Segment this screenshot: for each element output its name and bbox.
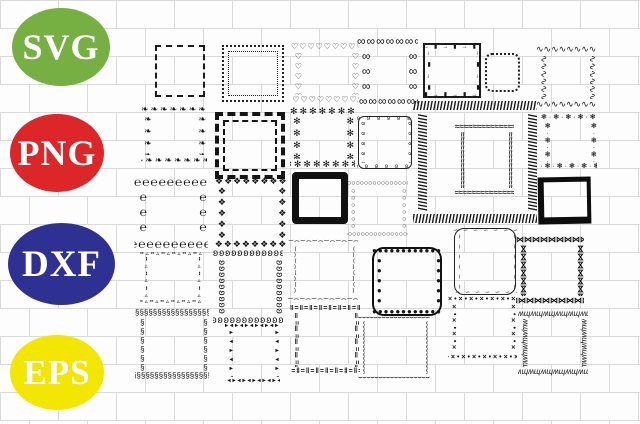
frame-edge-top: ⌣⌢⌣⌢⌣⌢⌣⌢⌣⌢⌣⌢⌣⌢⌣⌢⌣⌢⌣⌢⌣⌢⌣⌢⌣⌢⌣⌢⌣⌢⌣⌢⌣⌢⌣⌢⌣⌢⌣⌢… — [288, 236, 358, 248]
frame-celtic-braid: ⋈⋈⋈⋈⋈⋈⋈⋈⋈⋈⋈⋈⋈⋈⋈⋈⋈⋈⋈⋈⋈⋈⋈⋈⋈⋈⋈⋈⋈⋈⋈⋈⋈⋈⋈⋈⋈⋈⋈⋈… — [518, 238, 582, 303]
grout-line-v — [609, 309, 610, 336]
grout-line-v — [348, 393, 349, 420]
grout-line-v — [0, 281, 1, 308]
frame-edge-right: ‖=‖=‖=‖=‖=‖=‖=‖=‖=‖=‖=‖=‖=‖=‖=‖=‖=‖=‖=‖=… — [350, 313, 359, 366]
grout-line-v — [638, 169, 639, 196]
frame-small-dotted — [485, 53, 520, 92]
frame-stitch-dash — [155, 45, 205, 97]
grout-line-v — [435, 365, 436, 392]
frame-edge-left: ʚʚʚʚʚʚʚʚʚʚʚʚʚʚʚʚʚʚʚʚʚʚʚʚʚʚʚʚʚʚʚʚʚʚʚʚʚʚʚʚ… — [213, 260, 227, 314]
frame-edge-left: ⌣⌣⌣⌣⌣⌣⌣⌣⌣⌣⌣⌣⌣⌣⌣⌣⌣⌣⌣⌣⌣⌣⌣⌣⌣⌣⌣⌣⌣⌣⌣⌣⌣⌣⌣⌣⌣⌣⌣⌣… — [359, 321, 367, 373]
frame-edge-left: ▸◂▸◂▸◂▸◂▸◂▸◂▸◂▸◂▸◂▸◂▸◂▸◂▸◂▸◂▸◂▸◂▸◂▸◂▸◂▸◂… — [226, 329, 234, 376]
format-badge-png: PNG — [10, 114, 104, 192]
frame-edge-bottom: ⌣⌣⌣⌣⌣⌣⌣⌣⌣⌣⌣⌣⌣⌣⌣⌣⌣⌣⌣⌣⌣⌣⌣⌣⌣⌣⌣⌣⌣⌣⌣⌣⌣⌣⌣⌣⌣⌣⌣⌣… — [358, 372, 430, 380]
frame-edge-right: ♡♡♡♡♡♡♡♡♡♡♡♡♡♡♡♡♡♡♡♡♡♡♡♡♡♡♡♡♡♡♡♡♡♡♡♡♡♡♡♡… — [348, 52, 359, 95]
grout-line-v — [522, 57, 523, 84]
frame-edge-right: ╍▵╍▵╍▵╍▵╍▵╍▵╍▵╍▵╍▵╍▵╍▵╍▵╍▵╍▵╍▵╍▵╍▵╍▵╍▵╍▵… — [193, 257, 201, 297]
frame-circuit-arrow: →▮→▮→▮→▮→▮→▮→▮→▮→▮→▮→▮→▮→▮→▮→▮→▮→▮→▮→▮→▮… — [423, 43, 481, 98]
grout-line-v — [406, 393, 407, 420]
grout-line-v — [116, 225, 117, 252]
frame-edge-right: ✻✻✻✻✻✻✻✻✻✻✻✻✻✻✻✻✻✻✻✻✻✻✻✻✻✻✻✻✻✻✻✻✻✻✻✻✻✻✻✻… — [343, 117, 355, 159]
grout-line-h — [0, 420, 640, 421]
format-badge-label: DXF — [22, 243, 101, 286]
grout-line-v — [29, 309, 30, 336]
grout-line-v — [638, 57, 639, 84]
frame-edge-top: ‖=‖=‖=‖=‖=‖=‖=‖=‖=‖=‖=‖=‖=‖=‖=‖=‖=‖=‖=‖=… — [290, 305, 360, 314]
frame-x-dot: ×•×•×•×•×•×•×•×•×•×•×•×•×•×•×•×•×•×•×•×•… — [450, 298, 515, 359]
frame-dash-triangle: ╍▵╍▵╍▵╍▵╍▵╍▵╍▵╍▵╍▵╍▵╍▵╍▵╍▵╍▵╍▵╍▵╍▵╍▵╍▵╍▵… — [142, 252, 200, 303]
grout-line-v — [638, 393, 639, 420]
frame-edge-bottom: ⋈⋈⋈⋈⋈⋈⋈⋈⋈⋈⋈⋈⋈⋈⋈⋈⋈⋈⋈⋈⋈⋈⋈⋈⋈⋈⋈⋈⋈⋈⋈⋈⋈⋈⋈⋈⋈⋈⋈⋈… — [516, 294, 584, 305]
frame-asterisk: ✻✻✻✻✻✻✻✻✻✻✻✻✻✻✻✻✻✻✻✻✻✻✻✻✻✻✻✻✻✻✻✻✻✻✻✻✻✻✻✻… — [292, 109, 353, 167]
frame-edge-right: →▮→▮→▮→▮→▮→▮→▮→▮→▮→▮→▮→▮→▮→▮→▮→▮→▮→▮→▮→▮… — [472, 50, 480, 90]
frame-lace-scroll: §§§§§§§§§§§§§§§§§§§§§§§§§§§§§§§§§§§§§§§§… — [137, 311, 207, 378]
frame-bold-double-dash — [215, 112, 285, 179]
grout-line-v — [0, 225, 1, 252]
grout-line-v — [348, 1, 349, 28]
grout-line-v — [290, 1, 291, 28]
frame-edge-top: ▸◂▸◂▸◂▸◂▸◂▸◂▸◂▸◂▸◂▸◂▸◂▸◂▸◂▸◂▸◂▸◂▸◂▸◂▸◂▸◂… — [225, 323, 280, 331]
grout-line-v — [464, 1, 465, 28]
frame-edge-bottom: ʚʚʚʚʚʚʚʚʚʚʚʚʚʚʚʚʚʚʚʚʚʚʚʚʚʚʚʚʚʚʚʚʚʚʚʚʚʚʚʚ… — [357, 161, 413, 169]
frame-inner-border — [301, 181, 339, 215]
frame-edge-top: ∽∽∽∽∽∽∽∽∽∽∽∽∽∽∽∽∽∽∽∽∽∽∽∽∽∽∽∽∽∽∽∽∽∽∽∽∽∽∽∽… — [453, 228, 517, 236]
frame-edge-right: ʚʚʚʚʚʚʚʚʚʚʚʚʚʚʚʚʚʚʚʚʚʚʚʚʚʚʚʚʚʚʚʚʚʚʚʚʚʚʚʚ… — [270, 260, 284, 314]
frame-edge-top: ℮℮℮℮℮℮℮℮℮℮℮℮℮℮℮℮℮℮℮℮℮℮℮℮℮℮℮℮℮℮℮℮℮℮℮℮℮℮℮℮… — [134, 176, 208, 192]
frame-edge-top: ʚʚʚʚʚʚʚʚʚʚʚʚʚʚʚʚʚʚʚʚʚʚʚʚʚʚʚʚʚʚʚʚʚʚʚʚʚʚʚʚ… — [357, 116, 413, 124]
grout-line-v — [87, 85, 88, 112]
grout-line-v — [116, 1, 117, 28]
frame-edge-right: ʍɰʍɰʍɰʍɰʍɰʍɰʍɰʍɰʍɰʍɰʍɰʍɰʍɰʍɰʍɰʍɰʍɰʍɰʍɰʍɰ… — [577, 319, 588, 367]
grout-line-v — [290, 337, 291, 364]
frame-scribble: ≈≈≈≈≈≈≈≈≈≈≈≈≈≈≈≈≈≈≈≈≈≈≈≈≈≈≈≈≈≈≈≈≈≈≈≈≈≈≈≈… — [457, 125, 512, 195]
frame-edge-left: ⌣⌢⌣⌢⌣⌢⌣⌢⌣⌢⌣⌢⌣⌢⌣⌢⌣⌢⌣⌢⌣⌢⌣⌢⌣⌢⌣⌢⌣⌢⌣⌢⌣⌢⌣⌢⌣⌢⌣⌢… — [288, 246, 300, 293]
frame-edge-bottom: ×•×•×•×•×•×•×•×•×•×•×•×•×•×•×•×•×•×•×•×•… — [448, 351, 517, 360]
format-badge-svg: SVG — [12, 8, 110, 86]
grout-line-v — [0, 169, 1, 196]
frame-edge-top: ʍɰʍɰʍɰʍɰʍɰʍɰʍɰʍɰʍɰʍɰʍɰʍɰʍɰʍɰʍɰʍɰʍɰʍɰʍɰʍɰ… — [518, 310, 588, 321]
frame-ring-chain: ○○○○○○○○○○○○○○○○○○○○○○○○○○○○○○○○○○○○○○○○… — [349, 182, 406, 236]
grout-line-v — [522, 393, 523, 420]
frame-edge-top: ♡♡♡♡♡♡♡♡♡♡♡♡♡♡♡♡♡♡♡♡♡♡♡♡♡♡♡♡♡♡♡♡♡♡♡♡♡♡♡♡… — [291, 43, 359, 54]
frame-edge-top: ≈≈≈≈≈≈≈≈≈≈≈≈≈≈≈≈≈≈≈≈≈≈≈≈≈≈≈≈≈≈≈≈≈≈≈≈≈≈≈≈… — [455, 123, 514, 134]
frame-edge-bottom: ❧❧❧❧❧❧❧❧❧❧❧❧❧❧❧❧❧❧❧❧❧❧❧❧❧❧❧❧❧❧❧❧❧❧❧❧❧❧❧❧… — [141, 153, 207, 165]
frame-black-scallop — [292, 172, 348, 224]
frame-flower-dot: ❃·❃·❃·❃·❃·❃·❃·❃·❃·❃·❃·❃·❃·❃·❃·❃·❃·❃·❃·❃·… — [543, 116, 595, 168]
grout-line-v — [0, 57, 1, 84]
frame-edge-right: ×•×•×•×•×•×•×•×•×•×•×•×•×•×•×•×•×•×•×•×•… — [507, 304, 516, 352]
frame-edge-top: ❃·❃·❃·❃·❃·❃·❃·❃·❃·❃·❃·❃·❃·❃·❃·❃·❃·❃·❃·❃·… — [541, 114, 597, 123]
grout-line-v — [638, 281, 639, 308]
frame-edge-bottom: ‖=‖=‖=‖=‖=‖=‖=‖=‖=‖=‖=‖=‖=‖=‖=‖=‖=‖=‖=‖=… — [290, 365, 360, 374]
format-badge-label: SVG — [22, 26, 99, 68]
frame-barbell-equals: ‖=‖=‖=‖=‖=‖=‖=‖=‖=‖=‖=‖=‖=‖=‖=‖=‖=‖=‖=‖=… — [292, 307, 358, 373]
grout-line-v — [203, 253, 204, 280]
frame-edge-top: ⌣⌣⌣⌣⌣⌣⌣⌣⌣⌣⌣⌣⌣⌣⌣⌣⌣⌣⌣⌣⌣⌣⌣⌣⌣⌣⌣⌣⌣⌣⌣⌣⌣⌣⌣⌣⌣⌣⌣⌣… — [358, 315, 430, 323]
format-badge-eps: EPS — [10, 335, 104, 410]
grout-line-v — [116, 337, 117, 364]
frame-edge-right: §§§§§§§§§§§§§§§§§§§§§§§§§§§§§§§§§§§§§§§§… — [198, 318, 209, 371]
frame-curly-loop: ∿∿∿∿∿∿∿∿∿∿∿∿∿∿∿∿∿∿∿∿∿∿∿∿∿∿∿∿∿∿∿∿∿∿∿∿∿∿∿∿… — [538, 47, 594, 107]
grout-line-v — [609, 253, 610, 280]
frame-hearts: ♡♡♡♡♡♡♡♡♡♡♡♡♡♡♡♡♡♡♡♡♡♡♡♡♡♡♡♡♡♡♡♡♡♡♡♡♡♡♡♡… — [293, 45, 357, 102]
frame-edge-left: ○○○○○○○○○○○○○○○○○○○○○○○○○○○○○○○○○○○○○○○○… — [347, 188, 356, 229]
grout-line-v — [493, 29, 494, 56]
frame-beaded-bold: ●●●●●●●●●●●●●●●●●●●●●●●●●●●●●●●●●●●●●●●●… — [372, 247, 442, 316]
grout-line-v — [0, 1, 1, 28]
frame-edge-top: ⋈⋈⋈⋈⋈⋈⋈⋈⋈⋈⋈⋈⋈⋈⋈⋈⋈⋈⋈⋈⋈⋈⋈⋈⋈⋈⋈⋈⋈⋈⋈⋈⋈⋈⋈⋈⋈⋈⋈⋈… — [516, 236, 584, 247]
grout-line-v — [464, 393, 465, 420]
frame-edge-top: ○○○○○○○○○○○○○○○○○○○○○○○○○○○○○○○○○○○○○○○○… — [347, 180, 408, 189]
grout-line-v — [638, 225, 639, 252]
frame-damask: ❖❖❖❖❖❖❖❖❖❖❖❖❖❖❖❖❖❖❖❖❖❖❖❖❖❖❖❖❖❖❖❖❖❖❖❖❖❖❖❖… — [217, 179, 285, 247]
frame-elegant-bracket: ∽∽∽∽∽∽∽∽∽∽∽∽∽∽∽∽∽∽∽∽∽∽∽∽∽∽∽∽∽∽∽∽∽∽∽∽∽∽∽∽… — [454, 228, 516, 295]
grout-line-v — [0, 393, 1, 420]
frame-edge-right: ∽∽∽∽∽∽∽∽∽∽∽∽∽∽∽∽∽∽∽∽∽∽∽∽∽∽∽∽∽∽∽∽∽∽∽∽∽∽∽∽… — [508, 234, 516, 288]
frame-edge-left: ʍɰʍɰʍɰʍɰʍɰʍɰʍɰʍɰʍɰʍɰʍɰʍɰʍɰʍɰʍɰʍɰʍɰʍɰʍɰʍɰ… — [518, 319, 529, 367]
frame-edge-right: ❧❧❧❧❧❧❧❧❧❧❧❧❧❧❧❧❧❧❧❧❧❧❧❧❧❧❧❧❧❧❧❧❧❧❧❧❧❧❧❧… — [195, 115, 207, 155]
grout-line-v — [609, 365, 610, 392]
frame-edge-top: ∿∿∿∿∿∿∿∿∿∿∿∿∿∿∿∿∿∿∿∿∿∿∿∿∿∿∿∿∿∿∿∿∿∿∿∿∿∿∿∿… — [536, 45, 596, 57]
frame-edge-top: §§§§§§§§§§§§§§§§§§§§§§§§§§§§§§§§§§§§§§§§… — [135, 309, 209, 320]
frame-edge-bottom: ●●●●●●●●●●●●●●●●●●●●●●●●●●●●●●●●●●●●●●●●… — [372, 305, 442, 316]
grout-line-v — [609, 197, 610, 224]
frame-edge-left: ≈≈≈≈≈≈≈≈≈≈≈≈≈≈≈≈≈≈≈≈≈≈≈≈≈≈≈≈≈≈≈≈≈≈≈≈≈≈≈≈… — [455, 132, 466, 188]
frame-edge-top: ●●●●●●●●●●●●●●●●●●●●●●●●●●●●●●●●●●●●●●●●… — [372, 247, 442, 258]
frame-edge-bottom: ╍▵╍▵╍▵╍▵╍▵╍▵╍▵╍▵╍▵╍▵╍▵╍▵╍▵╍▵╍▵╍▵╍▵╍▵╍▵╍▵… — [140, 296, 202, 304]
format-badge-label: PNG — [18, 132, 97, 174]
grout-line-v — [87, 309, 88, 336]
frame-edge-left: ∽∽∽∽∽∽∽∽∽∽∽∽∽∽∽∽∽∽∽∽∽∽∽∽∽∽∽∽∽∽∽∽∽∽∽∽∽∽∽∽… — [454, 234, 462, 288]
frame-inner-border — [223, 120, 277, 171]
frame-edge-left: ❧❧❧❧❧❧❧❧❧❧❧❧❧❧❧❧❧❧❧❧❧❧❧❧❧❧❧❧❧❧❧❧❧❧❧❧❧❧❧❧… — [141, 115, 153, 155]
format-badge-dxf: DXF — [8, 223, 115, 305]
frame-edge-left: ×•×•×•×•×•×•×•×•×•×•×•×•×•×•×•×•×•×•×•×•… — [448, 304, 457, 352]
grout-line-v — [174, 393, 175, 420]
grout-line-v — [87, 197, 88, 224]
frame-edge-bottom: ////////////////////////////////////////… — [413, 209, 537, 225]
frame-edge-left: ❃·❃·❃·❃·❃·❃·❃·❃·❃·❃·❃·❃·❃·❃·❃·❃·❃·❃·❃·❃·… — [541, 122, 550, 161]
frame-edge-bottom: ▸◂▸◂▸◂▸◂▸◂▸◂▸◂▸◂▸◂▸◂▸◂▸◂▸◂▸◂▸◂▸◂▸◂▸◂▸◂▸◂… — [225, 375, 280, 383]
frame-brush-stroke — [538, 177, 592, 225]
frame-edge-bottom: §§§§§§§§§§§§§§§§§§§§§§§§§§§§§§§§§§§§§§§§… — [135, 369, 209, 380]
frame-edge-left: ╍▵╍▵╍▵╍▵╍▵╍▵╍▵╍▵╍▵╍▵╍▵╍▵╍▵╍▵╍▵╍▵╍▵╍▵╍▵╍▵… — [141, 257, 149, 297]
frame-scribble-script: ʍɰʍɰʍɰʍɰʍɰʍɰʍɰʍɰʍɰʍɰʍɰʍɰʍɰʍɰʍɰʍɰʍɰʍɰʍɰʍɰ… — [520, 312, 586, 374]
frame-edge-top: ❧❧❧❧❧❧❧❧❧❧❧❧❧❧❧❧❧❧❧❧❧❧❧❧❧❧❧❧❧❧❧❧❧❧❧❧❧❧❧❧… — [141, 105, 207, 117]
grout-line-v — [290, 393, 291, 420]
product-image: SVGPNGDXFEPS ♡♡♡♡♡♡♡♡♡♡♡♡♡♡♡♡♡♡♡♡♡♡♡♡♡♡♡… — [0, 0, 640, 424]
frame-edge-left: ℮℮℮℮℮℮℮℮℮℮℮℮℮℮℮℮℮℮℮℮℮℮℮℮℮℮℮℮℮℮℮℮℮℮℮℮℮℮℮℮… — [133, 190, 149, 236]
frame-edge-top: ∞∞∞∞∞∞∞∞∞∞∞∞∞∞∞∞∞∞∞∞∞∞∞∞∞∞∞∞∞∞∞∞∞∞∞∞∞∞∞∞… — [357, 35, 418, 51]
frame-inner-border — [228, 51, 278, 96]
grout-line-v — [580, 393, 581, 420]
grout-line-v — [638, 337, 639, 364]
frame-edge-left: ♡♡♡♡♡♡♡♡♡♡♡♡♡♡♡♡♡♡♡♡♡♡♡♡♡♡♡♡♡♡♡♡♡♡♡♡♡♡♡♡… — [291, 52, 302, 95]
frame-arrow-tick: ▸◂▸◂▸◂▸◂▸◂▸◂▸◂▸◂▸◂▸◂▸◂▸◂▸◂▸◂▸◂▸◂▸◂▸◂▸◂▸◂… — [227, 324, 278, 382]
frame-edge-left: →▮→▮→▮→▮→▮→▮→▮→▮→▮→▮→▮→▮→▮→▮→▮→▮→▮→▮→▮→▮… — [424, 50, 432, 90]
frame-edge-left: ∿∿∿∿∿∿∿∿∿∿∿∿∿∿∿∿∿∿∿∿∿∿∿∿∿∿∿∿∿∿∿∿∿∿∿∿∿∿∿∿… — [536, 55, 548, 99]
frame-big-loops: ℮℮℮℮℮℮℮℮℮℮℮℮℮℮℮℮℮℮℮℮℮℮℮℮℮℮℮℮℮℮℮℮℮℮℮℮℮℮℮℮… — [136, 179, 206, 247]
frame-edge-bottom: ○○○○○○○○○○○○○○○○○○○○○○○○○○○○○○○○○○○○○○○○… — [347, 228, 408, 237]
grout-line-v — [290, 57, 291, 84]
grout-line-v — [493, 365, 494, 392]
frame-edge-right: ⌣⌣⌣⌣⌣⌣⌣⌣⌣⌣⌣⌣⌣⌣⌣⌣⌣⌣⌣⌣⌣⌣⌣⌣⌣⌣⌣⌣⌣⌣⌣⌣⌣⌣⌣⌣⌣⌣⌣⌣… — [421, 321, 429, 373]
frame-leaf-vine: ❧❧❧❧❧❧❧❧❧❧❧❧❧❧❧❧❧❧❧❧❧❧❧❧❧❧❧❧❧❧❧❧❧❧❧❧❧❧❧❧… — [143, 107, 205, 163]
frame-edge-top: ❖❖❖❖❖❖❖❖❖❖❖❖❖❖❖❖❖❖❖❖❖❖❖❖❖❖❖❖❖❖❖❖❖❖❖❖❖❖❖❖… — [215, 177, 287, 189]
frame-edge-top: →▮→▮→▮→▮→▮→▮→▮→▮→▮→▮→▮→▮→▮→▮→▮→▮→▮→▮→▮→▮… — [423, 44, 481, 52]
frame-double-dotted — [222, 45, 284, 102]
frame-edge-top: ////////////////////////////////////////… — [413, 100, 537, 116]
grout-line-v — [609, 29, 610, 56]
grout-line-v — [29, 197, 30, 224]
grout-line-v — [145, 29, 146, 56]
frame-edge-right: ❃·❃·❃·❃·❃·❃·❃·❃·❃·❃·❃·❃·❃·❃·❃·❃·❃·❃·❃·❃·… — [587, 122, 596, 161]
grout-line-v — [580, 1, 581, 28]
frame-spiral-curl: ʚʚʚʚʚʚʚʚʚʚʚʚʚʚʚʚʚʚʚʚʚʚʚʚʚʚʚʚʚʚʚʚʚʚʚʚʚʚʚʚ… — [215, 251, 281, 323]
grout-line-v — [116, 281, 117, 308]
frame-swirl-bud: ʚʚʚʚʚʚʚʚʚʚʚʚʚʚʚʚʚʚʚʚʚʚʚʚʚʚʚʚʚʚʚʚʚʚʚʚʚʚʚʚ… — [358, 116, 412, 169]
frame-edge-top: ʚʚʚʚʚʚʚʚʚʚʚʚʚʚʚʚʚʚʚʚʚʚʚʚʚʚʚʚʚʚʚʚʚʚʚʚʚʚʚʚ… — [213, 249, 283, 263]
frame-edge-bottom: ♡♡♡♡♡♡♡♡♡♡♡♡♡♡♡♡♡♡♡♡♡♡♡♡♡♡♡♡♡♡♡♡♡♡♡♡♡♡♡♡… — [291, 93, 359, 104]
frame-edge-left: ✻✻✻✻✻✻✻✻✻✻✻✻✻✻✻✻✻✻✻✻✻✻✻✻✻✻✻✻✻✻✻✻✻✻✻✻✻✻✻✻… — [290, 117, 302, 159]
grout-line-v — [116, 169, 117, 196]
frame-edge-right: ●●●●●●●●●●●●●●●●●●●●●●●●●●●●●●●●●●●●●●●●… — [431, 256, 442, 307]
grout-line-v — [638, 1, 639, 28]
frame-edge-left: ‖=‖=‖=‖=‖=‖=‖=‖=‖=‖=‖=‖=‖=‖=‖=‖=‖=‖=‖=‖=… — [290, 313, 299, 366]
frame-edge-right: ❖❖❖❖❖❖❖❖❖❖❖❖❖❖❖❖❖❖❖❖❖❖❖❖❖❖❖❖❖❖❖❖❖❖❖❖❖❖❖❖… — [275, 187, 287, 239]
frame-edge-bottom: ❖❖❖❖❖❖❖❖❖❖❖❖❖❖❖❖❖❖❖❖❖❖❖❖❖❖❖❖❖❖❖❖❖❖❖❖❖❖❖❖… — [215, 237, 287, 249]
frame-ruffle-lace: ⌣⌣⌣⌣⌣⌣⌣⌣⌣⌣⌣⌣⌣⌣⌣⌣⌣⌣⌣⌣⌣⌣⌣⌣⌣⌣⌣⌣⌣⌣⌣⌣⌣⌣⌣⌣⌣⌣⌣⌣… — [360, 316, 428, 379]
grout-line-v — [116, 393, 117, 420]
grout-line-v — [522, 1, 523, 28]
grout-line-v — [406, 1, 407, 28]
grout-line-v — [116, 57, 117, 84]
frame-edge-top: ╍▵╍▵╍▵╍▵╍▵╍▵╍▵╍▵╍▵╍▵╍▵╍▵╍▵╍▵╍▵╍▵╍▵╍▵╍▵╍▵… — [140, 251, 202, 259]
grout-line-v — [609, 85, 610, 112]
grout-line-v — [609, 141, 610, 168]
frame-edge-right: ⌣⌢⌣⌢⌣⌢⌣⌢⌣⌢⌣⌢⌣⌢⌣⌢⌣⌢⌣⌢⌣⌢⌣⌢⌣⌢⌣⌢⌣⌢⌣⌢⌣⌢⌣⌢⌣⌢⌣⌢… — [346, 246, 358, 293]
frame-edge-bottom: →▮→▮→▮→▮→▮→▮→▮→▮→▮→▮→▮→▮→▮→▮→▮→▮→▮→▮→▮→▮… — [423, 89, 481, 97]
grout-line-v — [406, 169, 407, 196]
frame-edge-left: ⋈⋈⋈⋈⋈⋈⋈⋈⋈⋈⋈⋈⋈⋈⋈⋈⋈⋈⋈⋈⋈⋈⋈⋈⋈⋈⋈⋈⋈⋈⋈⋈⋈⋈⋈⋈⋈⋈⋈⋈… — [516, 245, 527, 296]
grout-line-v — [638, 113, 639, 140]
grout-line-v — [232, 1, 233, 28]
grout-line-v — [290, 169, 291, 196]
grout-line-v — [232, 393, 233, 420]
frame-edge-right: ∿∿∿∿∿∿∿∿∿∿∿∿∿∿∿∿∿∿∿∿∿∿∿∿∿∿∿∿∿∿∿∿∿∿∿∿∿∿∿∿… — [584, 55, 596, 99]
frame-edge-left: ●●●●●●●●●●●●●●●●●●●●●●●●●●●●●●●●●●●●●●●●… — [372, 256, 383, 307]
frame-edge-bottom: ℮℮℮℮℮℮℮℮℮℮℮℮℮℮℮℮℮℮℮℮℮℮℮℮℮℮℮℮℮℮℮℮℮℮℮℮℮℮℮℮… — [134, 234, 208, 250]
grout-line-v — [0, 337, 1, 364]
grout-line-v — [116, 113, 117, 140]
grout-line-v — [290, 113, 291, 140]
frame-edge-top: ✻✻✻✻✻✻✻✻✻✻✻✻✻✻✻✻✻✻✻✻✻✻✻✻✻✻✻✻✻✻✻✻✻✻✻✻✻✻✻✻… — [290, 107, 355, 119]
grout-line-h — [0, 0, 640, 1]
frame-edge-top: ×•×•×•×•×•×•×•×•×•×•×•×•×•×•×•×•×•×•×•×•… — [448, 296, 517, 305]
frame-edge-right: ʚʚʚʚʚʚʚʚʚʚʚʚʚʚʚʚʚʚʚʚʚʚʚʚʚʚʚʚʚʚʚʚʚʚʚʚʚʚʚʚ… — [404, 122, 412, 162]
frame-edge-left: ////////////////////////////////////////… — [412, 114, 428, 211]
frame-loop-swirl: ∞∞∞∞∞∞∞∞∞∞∞∞∞∞∞∞∞∞∞∞∞∞∞∞∞∞∞∞∞∞∞∞∞∞∞∞∞∞∞∞… — [359, 38, 416, 104]
grout-line-v — [0, 113, 1, 140]
frame-edge-bottom: ∽∽∽∽∽∽∽∽∽∽∽∽∽∽∽∽∽∽∽∽∽∽∽∽∽∽∽∽∽∽∽∽∽∽∽∽∽∽∽∽… — [453, 287, 517, 295]
grout-line-v — [29, 85, 30, 112]
frame-edge-left: ∞∞∞∞∞∞∞∞∞∞∞∞∞∞∞∞∞∞∞∞∞∞∞∞∞∞∞∞∞∞∞∞∞∞∞∞∞∞∞∞… — [356, 49, 372, 93]
frame-edge-left: ❖❖❖❖❖❖❖❖❖❖❖❖❖❖❖❖❖❖❖❖❖❖❖❖❖❖❖❖❖❖❖❖❖❖❖❖❖❖❖❖… — [215, 187, 227, 239]
frame-edge-left: §§§§§§§§§§§§§§§§§§§§§§§§§§§§§§§§§§§§§§§§… — [135, 318, 146, 371]
frame-edge-bottom: ∿∿∿∿∿∿∿∿∿∿∿∿∿∿∿∿∿∿∿∿∿∿∿∿∿∿∿∿∿∿∿∿∿∿∿∿∿∿∿∿… — [536, 97, 596, 109]
frame-edge-bottom: ∞∞∞∞∞∞∞∞∞∞∞∞∞∞∞∞∞∞∞∞∞∞∞∞∞∞∞∞∞∞∞∞∞∞∞∞∞∞∞∞… — [357, 91, 418, 107]
grout-line-v — [174, 1, 175, 28]
frame-edge-bottom: ʍɰʍɰʍɰʍɰʍɰʍɰʍɰʍɰʍɰʍɰʍɰʍɰʍɰʍɰʍɰʍɰʍɰʍɰʍɰʍɰ… — [518, 365, 588, 376]
frame-edge-left: ʚʚʚʚʚʚʚʚʚʚʚʚʚʚʚʚʚʚʚʚʚʚʚʚʚʚʚʚʚʚʚʚʚʚʚʚʚʚʚʚ… — [358, 122, 366, 162]
frame-ribbon-wave: ⌣⌢⌣⌢⌣⌢⌣⌢⌣⌢⌣⌢⌣⌢⌣⌢⌣⌢⌣⌢⌣⌢⌣⌢⌣⌢⌣⌢⌣⌢⌣⌢⌣⌢⌣⌢⌣⌢⌣⌢… — [290, 238, 356, 301]
format-badge-label: EPS — [23, 353, 90, 393]
